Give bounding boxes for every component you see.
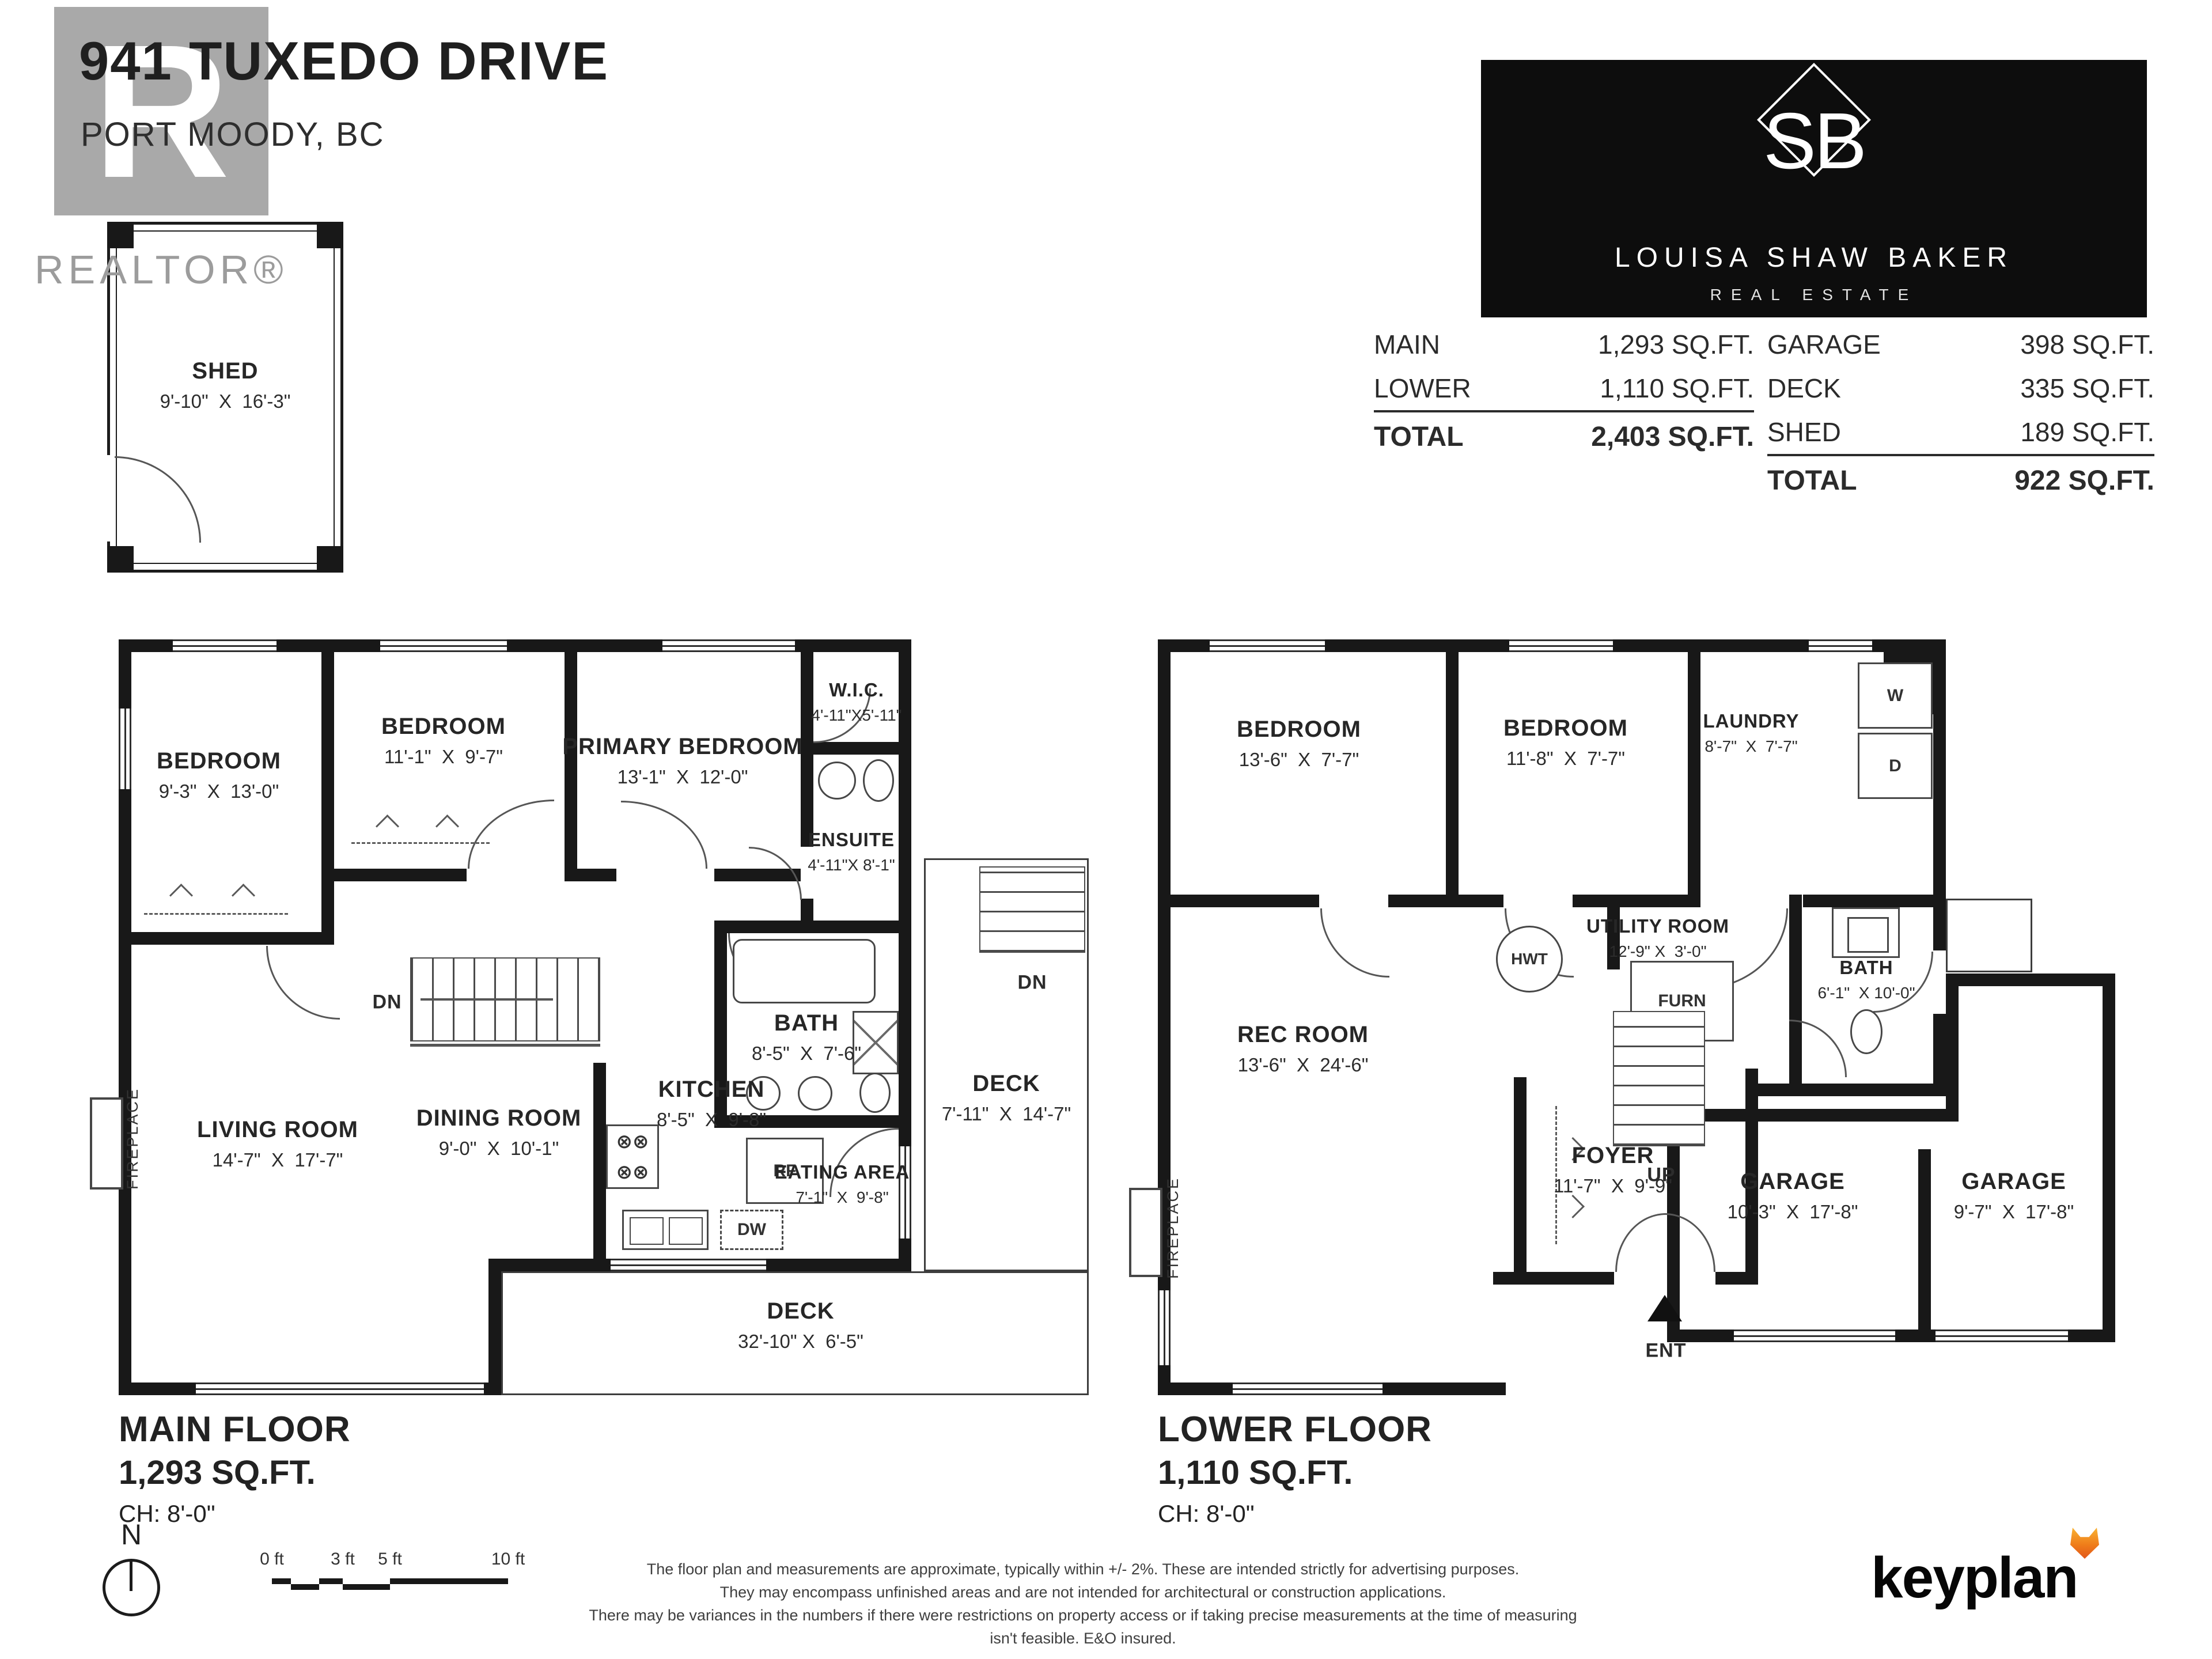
- room-dims: 8'-5" X 7'-6": [752, 1040, 861, 1067]
- room-label-laundry: LAUNDRY 8'-7" X 7'-7": [1703, 707, 1799, 758]
- realtor-wordmark: REALTOR®: [35, 247, 288, 293]
- wall: [1158, 895, 1319, 907]
- entry-label: ENT: [1646, 1340, 1687, 1362]
- stove-icon: ⊗⊗⊗⊗: [606, 1124, 659, 1189]
- room-dims: 7'-1" X 9'-8": [775, 1186, 910, 1210]
- window: [1509, 639, 1613, 652]
- room-name: LAUNDRY: [1703, 707, 1799, 735]
- kitchen-sink-icon: [622, 1210, 709, 1250]
- wall: [1895, 1330, 1935, 1342]
- disclaimer-line: They may encompass unfinished areas and …: [576, 1581, 1590, 1604]
- room-label-eating-area: EATING AREA 7'-1" X 9'-8": [775, 1158, 910, 1209]
- row-label: DECK: [1767, 373, 1841, 404]
- table-row: GARAGE 398 SQ.FT.: [1767, 323, 2154, 366]
- floor-ceiling-height: CH: 8'-0": [1158, 1500, 1432, 1528]
- row-value: 189 SQ.FT.: [2020, 416, 2154, 448]
- room-name: PRIMARY BEDROOM: [562, 730, 802, 763]
- wall: [593, 1063, 606, 1259]
- wall: [119, 932, 334, 945]
- page-title: 941 TUXEDO DRIVE: [79, 30, 609, 92]
- garage-door: [1935, 1330, 2068, 1342]
- row-value: 1,110 SQ.FT.: [1600, 373, 1754, 404]
- room-label-bedroom: BEDROOM 9'-3" X 13'-0": [157, 744, 281, 805]
- room-name: BEDROOM: [1237, 713, 1361, 746]
- room-name: KITCHEN: [657, 1073, 766, 1106]
- wall: [1388, 895, 1503, 907]
- door-arc: [468, 800, 554, 869]
- dishwasher-label: DW: [737, 1220, 766, 1240]
- window: [611, 1259, 766, 1271]
- toilet-icon: [859, 1073, 891, 1113]
- brand-tagline: REAL ESTATE: [1481, 286, 2147, 304]
- room-dims: 14'-7" X 17'-7": [197, 1146, 358, 1174]
- room-dims: 8'-5" X 9'-8": [657, 1106, 766, 1134]
- scale-segment: [319, 1578, 343, 1584]
- floor-ceiling-height: CH: 8'-0": [119, 1500, 351, 1528]
- shed-corner: [107, 222, 134, 248]
- row-value: 2,403 SQ.FT.: [1591, 421, 1754, 453]
- row-label: LOWER: [1374, 373, 1471, 404]
- fireplace-label: FIREPLACE: [124, 1097, 141, 1190]
- room-label-garage: GARAGE 9'-7" X 17'-8": [1954, 1165, 2074, 1226]
- fireplace-box: [1129, 1188, 1162, 1277]
- room-label-primary-bedroom: PRIMARY BEDROOM 13'-1" X 12'-0": [562, 730, 802, 791]
- floor-area: 1,293 SQ.FT.: [119, 1453, 351, 1492]
- brand-card: SB LOUISA SHAW BAKER REAL ESTATE: [1481, 60, 2147, 317]
- window: [1809, 639, 1872, 652]
- entry-door-arc: [1615, 1213, 1666, 1272]
- dryer-box: D: [1858, 733, 1933, 799]
- room-label-shed: SHED 9'-10" X 16'-3": [160, 354, 291, 415]
- hanger-icon: [169, 884, 193, 907]
- scale-segment: [390, 1578, 508, 1584]
- room-name: DECK: [738, 1294, 863, 1328]
- table-total-row: TOTAL 922 SQ.FT.: [1767, 456, 2154, 505]
- brand-monogram: SB: [1481, 96, 2147, 187]
- bathtub-icon: [733, 939, 876, 1003]
- shed-door-gap: [107, 455, 115, 541]
- room-label-wic: W.I.C. 4'-11"X5'-11": [811, 676, 902, 727]
- wall: [1918, 1149, 1931, 1330]
- toilet-icon: [1850, 1009, 1883, 1054]
- wall: [801, 742, 911, 755]
- scale-segment: [291, 1584, 319, 1590]
- staircase-up: [1613, 1011, 1705, 1146]
- disclaimer-line: The floor plan and measurements are appr…: [576, 1558, 1590, 1581]
- wall: [1946, 974, 1959, 1122]
- scale-segment: [272, 1578, 291, 1584]
- stair-arrow: [421, 998, 553, 1001]
- scale-segment: [343, 1584, 390, 1590]
- brand-name: LOUISA SHAW BAKER: [1481, 242, 2147, 274]
- room-label-living-room: LIVING ROOM 14'-7" X 17'-7": [197, 1113, 358, 1174]
- room-name: LIVING ROOM: [197, 1113, 358, 1146]
- table-row: MAIN 1,293 SQ.FT.: [1374, 323, 1754, 366]
- room-label-garage: GARAGE 10'-3" X 17'-8": [1728, 1165, 1858, 1226]
- closet-rod: [144, 913, 288, 915]
- room-dims: 11'-1" X 9'-7": [381, 743, 506, 771]
- wall: [321, 639, 334, 945]
- room-label-utility-room: UTILITY ROOM 12'-9" X 3'-0": [1586, 912, 1729, 963]
- window: [1233, 1382, 1382, 1395]
- stair-rail: [410, 1044, 600, 1047]
- room-name: REC ROOM: [1237, 1018, 1369, 1051]
- room-label-bedroom: BEDROOM 13'-6" X 7'-7": [1237, 713, 1361, 774]
- stairs-dn-label: DN: [372, 991, 402, 1014]
- wall: [714, 921, 911, 933]
- room-dims: 32'-10" X 6'-5": [738, 1328, 863, 1355]
- room-name: BATH: [1817, 954, 1915, 982]
- shed-corner: [317, 222, 343, 248]
- room-name: DINING ROOM: [416, 1101, 582, 1135]
- room-dims: 9'-3" X 13'-0": [157, 778, 281, 805]
- wall: [2068, 1330, 2115, 1342]
- door-arc: [266, 946, 340, 1020]
- area-table-right: GARAGE 398 SQ.FT. DECK 335 SQ.FT. SHED 1…: [1767, 323, 2154, 505]
- window: [662, 639, 795, 652]
- side-landing: [1946, 899, 2032, 972]
- lower-floor-footer: LOWER FLOOR 1,110 SQ.FT. CH: 8'-0": [1158, 1409, 1432, 1528]
- room-label-bedroom: BEDROOM 11'-1" X 9'-7": [381, 710, 506, 771]
- washer-label: W: [1887, 686, 1903, 706]
- page-subtitle: PORT MOODY, BC: [81, 115, 385, 154]
- room-label-bedroom: BEDROOM 11'-8" X 7'-7": [1503, 711, 1628, 772]
- sink-basin: [669, 1217, 703, 1245]
- door-arc: [1320, 908, 1389, 978]
- room-label-kitchen: KITCHEN 8'-5" X 9'-8": [657, 1073, 766, 1134]
- window: [173, 639, 276, 652]
- room-label-dining-room: DINING ROOM 9'-0" X 10'-1": [416, 1101, 582, 1162]
- wall: [1946, 974, 2115, 986]
- room-name: GARAGE: [1954, 1165, 2074, 1198]
- shed-corner: [107, 546, 134, 573]
- room-dims: 7'-11" X 14'-7": [942, 1100, 1071, 1128]
- sink-icon: [798, 1076, 832, 1111]
- sink-basin: [630, 1217, 664, 1245]
- room-dims: 12'-9" X 3'-0": [1586, 940, 1729, 964]
- sink-icon: [1832, 907, 1900, 958]
- room-dims: 9'-10" X 16'-3": [160, 388, 291, 415]
- floor-title: MAIN FLOOR: [119, 1409, 351, 1450]
- washer-box: W: [1858, 662, 1933, 729]
- table-row: LOWER 1,110 SQ.FT.: [1374, 366, 1754, 410]
- scale-tick-label: 3 ft: [331, 1550, 355, 1569]
- room-label-bath: BATH 8'-5" X 7'-6": [752, 1006, 861, 1067]
- hanger-icon: [376, 815, 399, 838]
- row-value: 922 SQ.FT.: [2014, 465, 2154, 497]
- disclaimer-text: The floor plan and measurements are appr…: [576, 1558, 1590, 1650]
- keyplan-logo: keyplan: [1871, 1545, 2077, 1611]
- wall: [1803, 895, 1933, 907]
- area-table-left: MAIN 1,293 SQ.FT. LOWER 1,110 SQ.FT. TOT…: [1374, 323, 1754, 461]
- dryer-label: D: [1889, 756, 1902, 776]
- room-dims: 13'-6" X 7'-7": [1237, 746, 1361, 774]
- floor-title: LOWER FLOOR: [1158, 1409, 1432, 1450]
- row-label: MAIN: [1374, 329, 1440, 360]
- door-arc: [621, 801, 707, 869]
- row-value: 398 SQ.FT.: [2020, 329, 2154, 360]
- wall: [321, 869, 467, 881]
- wall: [565, 869, 616, 881]
- sink-basin: [1847, 917, 1889, 953]
- room-label-deck: DECK 7'-11" X 14'-7": [942, 1067, 1071, 1128]
- burner-icon: ⊗⊗: [616, 1162, 649, 1182]
- toilet-icon: [863, 759, 894, 802]
- floorplan-sheet: R 941 TUXEDO DRIVE PORT MOODY, BC REALTO…: [0, 0, 2212, 1659]
- furnace-label: FURN: [1658, 991, 1706, 1011]
- scale-tick-label: 10 ft: [491, 1550, 525, 1569]
- room-dims: 13'-6" X 24'-6": [1237, 1051, 1369, 1079]
- wall: [1745, 1084, 1802, 1096]
- room-name: FOYER: [1554, 1139, 1672, 1172]
- room-label-rec-room: REC ROOM 13'-6" X 24'-6": [1237, 1018, 1369, 1079]
- room-dims: 6'-1" X 10'-0": [1817, 982, 1915, 1005]
- dishwasher-box: DW: [720, 1210, 783, 1250]
- row-label: SHED: [1767, 416, 1841, 448]
- wall: [1688, 639, 1700, 907]
- row-value: 1,293 SQ.FT.: [1598, 329, 1754, 360]
- door-arc: [1789, 1020, 1847, 1077]
- room-name: BEDROOM: [157, 744, 281, 778]
- wall: [1446, 639, 1459, 907]
- room-dims: 11'-7" X 9'-9": [1554, 1172, 1672, 1200]
- room-label-ensuite: ENSUITE 4'-11"X 8'-1": [808, 826, 895, 877]
- room-label-foyer: FOYER 11'-7" X 9'-9": [1554, 1139, 1672, 1200]
- table-row: DECK 335 SQ.FT.: [1767, 366, 2154, 410]
- window: [196, 1382, 484, 1395]
- shed-corner: [317, 546, 343, 573]
- table-row: SHED 189 SQ.FT.: [1767, 410, 2154, 454]
- row-value: 335 SQ.FT.: [2020, 373, 2154, 404]
- hot-water-tank-icon: HWT: [1496, 926, 1563, 993]
- entry-door-arc: [1665, 1213, 1715, 1272]
- room-dims: 9'-7" X 17'-8": [1954, 1198, 2074, 1226]
- room-dims: 9'-0" X 10'-1": [416, 1135, 582, 1162]
- hwt-label: HWT: [1511, 950, 1548, 968]
- row-label: GARAGE: [1767, 329, 1881, 360]
- room-name: UTILITY ROOM: [1586, 912, 1729, 940]
- hanger-icon: [435, 815, 459, 838]
- window: [380, 639, 507, 652]
- window: [1158, 1290, 1171, 1365]
- door-arc: [749, 847, 802, 900]
- wall: [1667, 1109, 1959, 1122]
- fireplace-box: [90, 1097, 123, 1190]
- wall: [1493, 1272, 1614, 1285]
- sink-icon: [818, 762, 856, 800]
- hanger-icon: [232, 884, 255, 907]
- wall: [488, 1259, 501, 1395]
- wall: [2103, 974, 2115, 1342]
- deck-dn-label: DN: [1017, 972, 1047, 994]
- burner-icon: ⊗⊗: [616, 1132, 649, 1152]
- compass-needle: [130, 1561, 132, 1591]
- row-label: TOTAL: [1374, 421, 1464, 453]
- disclaimer-line: There may be variances in the numbers if…: [576, 1604, 1590, 1650]
- row-label: TOTAL: [1767, 465, 1857, 497]
- table-total-row: TOTAL 2,403 SQ.FT.: [1374, 412, 1754, 461]
- deck-stairs: [979, 866, 1085, 953]
- room-name: SHED: [160, 354, 291, 388]
- room-name: BATH: [752, 1006, 861, 1040]
- window: [119, 709, 131, 789]
- room-dims: 10'-3" X 17'-8": [1728, 1198, 1858, 1226]
- room-name: BEDROOM: [1503, 711, 1628, 745]
- closet-rod: [351, 842, 490, 844]
- room-dims: 4'-11"X5'-11": [811, 704, 902, 728]
- scale-tick-label: 0 ft: [260, 1550, 284, 1569]
- window: [1210, 639, 1325, 652]
- wall: [1158, 639, 1171, 1395]
- floor-area: 1,110 SQ.FT.: [1158, 1453, 1432, 1492]
- room-name: ENSUITE: [808, 826, 895, 854]
- wall: [1514, 1077, 1527, 1285]
- wall: [1573, 895, 1700, 907]
- entry-arrow-icon: [1647, 1295, 1682, 1321]
- fireplace-label: FIREPLACE: [1164, 1187, 1181, 1279]
- scale-tick-label: 5 ft: [378, 1550, 402, 1569]
- room-dims: 13'-1" X 12'-0": [562, 763, 802, 791]
- room-name: BEDROOM: [381, 710, 506, 743]
- room-label-bath: BATH 6'-1" X 10'-0": [1817, 954, 1915, 1005]
- room-label-deck: DECK 32'-10" X 6'-5": [738, 1294, 863, 1355]
- wall: [1789, 1084, 1946, 1096]
- room-dims: 8'-7" X 7'-7": [1703, 735, 1799, 759]
- room-dims: 4'-11"X 8'-1": [808, 854, 895, 877]
- garage-door: [1734, 1330, 1895, 1342]
- room-name: EATING AREA: [775, 1158, 910, 1186]
- room-dims: 11'-8" X 7'-7": [1503, 745, 1628, 772]
- room-name: GARAGE: [1728, 1165, 1858, 1198]
- main-floor-footer: MAIN FLOOR 1,293 SQ.FT. CH: 8'-0": [119, 1409, 351, 1528]
- room-name: DECK: [942, 1067, 1071, 1100]
- room-name: W.I.C.: [811, 676, 902, 704]
